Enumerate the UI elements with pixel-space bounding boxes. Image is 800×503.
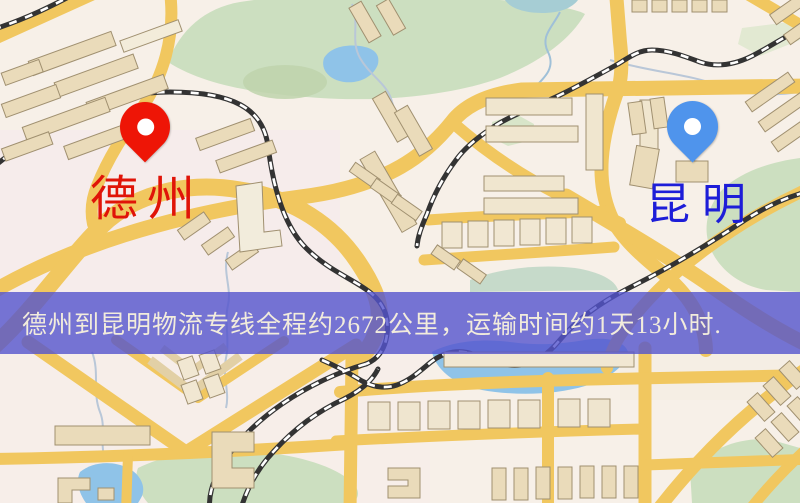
logistics-route-map: 德州 昆明 德州到昆明物流专线全程约2672公里，运输时间约1天13小时.: [0, 0, 800, 503]
route-info-text: 德州到昆明物流专线全程约2672公里，运输时间约1天13小时.: [22, 305, 722, 341]
destination-pin-hole: [680, 114, 704, 138]
origin-pin-hole: [133, 115, 157, 139]
destination-city-label: 昆明: [646, 183, 758, 227]
map-image: [0, 0, 800, 503]
origin-city-label: 德州: [90, 176, 204, 224]
route-info-banner: 德州到昆明物流专线全程约2672公里，运输时间约1天13小时.: [0, 292, 800, 354]
